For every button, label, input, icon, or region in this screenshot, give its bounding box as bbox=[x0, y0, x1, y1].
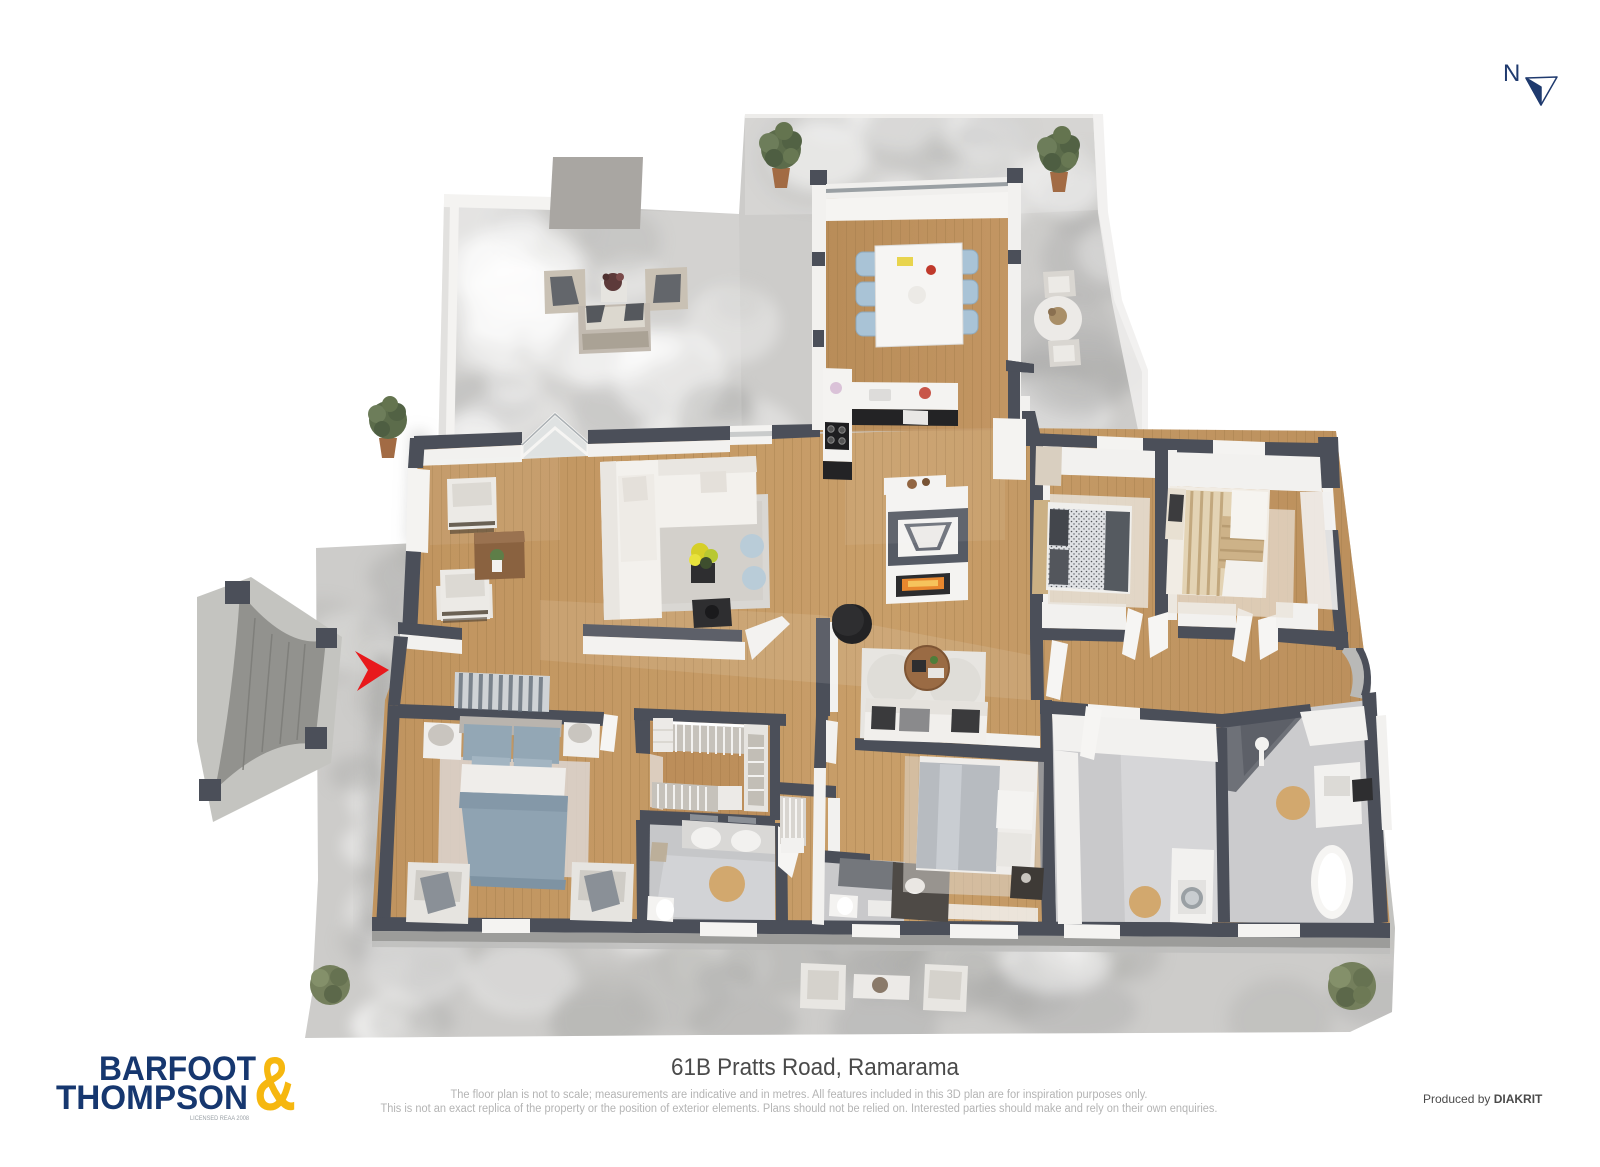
svg-text:THOMPSON: THOMPSON bbox=[56, 1079, 248, 1117]
svg-text:61B Pratts Road, Ramarama: 61B Pratts Road, Ramarama bbox=[671, 1054, 960, 1081]
svg-text:The floor plan is not to scale: The floor plan is not to scale; measurem… bbox=[451, 1089, 1148, 1101]
svg-text:This is not an exact replica o: This is not an exact replica of the prop… bbox=[381, 1103, 1218, 1115]
svg-text:Produced by DIAKRIT: Produced by DIAKRIT bbox=[1423, 1092, 1543, 1106]
svg-text:N: N bbox=[1503, 60, 1520, 87]
svg-text:&: & bbox=[254, 1042, 296, 1127]
svg-text:LICENSED REAA 2008: LICENSED REAA 2008 bbox=[190, 1115, 249, 1122]
